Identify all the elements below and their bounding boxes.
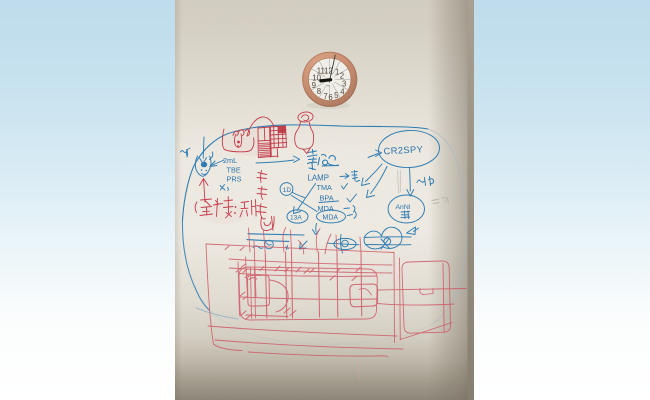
svg-text:6: 6 xyxy=(328,93,332,102)
svg-text:MDA: MDA xyxy=(318,204,334,213)
svg-text:13A: 13A xyxy=(290,215,302,222)
svg-text:8: 8 xyxy=(317,87,321,96)
svg-text:PRS: PRS xyxy=(227,175,242,184)
svg-text:TBE: TBE xyxy=(227,166,241,175)
svg-text:BPA: BPA xyxy=(320,194,334,203)
svg-text:11: 11 xyxy=(317,67,325,76)
svg-text:AnNI: AnNI xyxy=(396,204,411,211)
svg-text:TMA: TMA xyxy=(317,183,333,192)
svg-text:1D: 1D xyxy=(283,187,292,194)
svg-text:2mL: 2mL xyxy=(223,156,237,165)
svg-text:7: 7 xyxy=(323,92,327,101)
svg-text:MDA: MDA xyxy=(323,215,339,222)
svg-text:5: 5 xyxy=(334,91,339,100)
svg-text:LAMP: LAMP xyxy=(308,174,330,183)
svg-text:1: 1 xyxy=(335,68,339,77)
svg-text:CR2SPY: CR2SPY xyxy=(383,144,423,156)
svg-text:4: 4 xyxy=(340,87,345,96)
